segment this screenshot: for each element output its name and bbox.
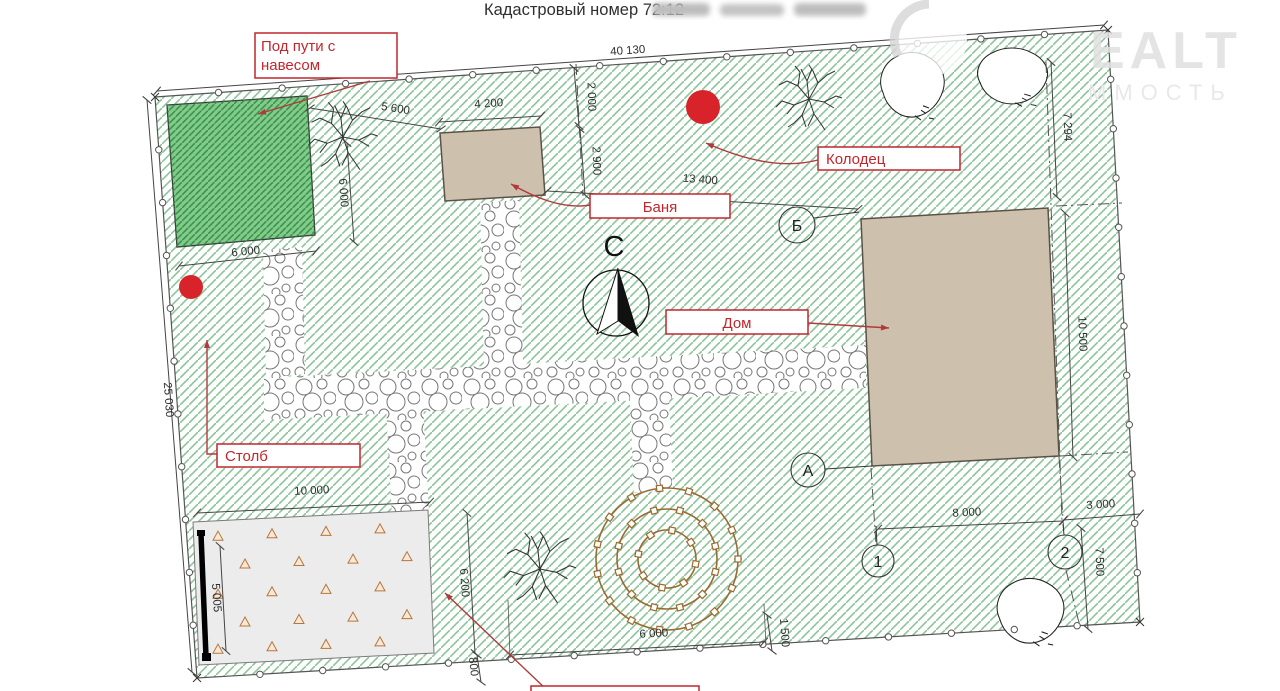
boundary-vertex xyxy=(571,652,577,658)
boundary-vertex xyxy=(1121,323,1127,329)
boundary-vertex xyxy=(186,569,192,575)
dim-right-bottom: 7 500 xyxy=(1092,547,1105,576)
boundary-vertex xyxy=(342,80,348,86)
callout-canopy-line1: Под пути с xyxy=(261,38,336,55)
boundary-vertex xyxy=(182,516,188,522)
boundary-vertex xyxy=(823,638,829,644)
dim-flowerbed-width: 6 000 xyxy=(639,627,668,640)
flowerbed-bead xyxy=(594,541,601,548)
boundary-vertex xyxy=(159,199,165,205)
flowerbed-bead xyxy=(635,551,642,558)
dim-canopy-side: 6 000 xyxy=(336,178,350,208)
boundary-vertex xyxy=(190,622,196,628)
flowerbed-bead xyxy=(656,485,663,492)
title-block: Кадастровый номер 72:12 xyxy=(484,1,866,19)
boundary-vertex xyxy=(978,36,984,42)
boundary-vertex xyxy=(171,358,177,364)
axis-label-b: Б xyxy=(792,218,803,235)
dim-800: 800 xyxy=(466,657,480,677)
boundary-vertex xyxy=(1011,626,1017,632)
boundary-vertex xyxy=(787,49,793,55)
boundary-vertex xyxy=(660,58,666,64)
boundary-vertex xyxy=(257,671,263,677)
boundary-vertex xyxy=(851,45,857,51)
boundary-vertex xyxy=(597,62,603,68)
flowerbed-bead xyxy=(685,488,693,496)
callout-well-label: Колодец xyxy=(826,151,886,168)
boundary-vertex xyxy=(382,664,388,670)
flowerbed-bead xyxy=(685,623,693,631)
boundary-vertex xyxy=(1134,570,1140,576)
dim-top-width: 40 130 xyxy=(610,44,646,58)
flowerbed-bead xyxy=(735,556,741,562)
dim-axis-1-2: 8 000 xyxy=(952,506,981,519)
flowerbed-bead xyxy=(615,568,622,575)
boundary-vertex xyxy=(470,72,476,78)
watermark-small-text: ММОСТЬ xyxy=(1088,80,1233,105)
boundary-vertex xyxy=(724,54,730,60)
boundary-vertex xyxy=(885,634,891,640)
boundary-vertex xyxy=(533,67,539,73)
watermark-big-text: EALT xyxy=(1090,22,1242,80)
dim-bath-depth: 2 900 xyxy=(589,146,602,175)
boundary-vertex xyxy=(406,76,412,82)
flowerbed-bead xyxy=(712,542,719,549)
dim-garden-right: 6 200 xyxy=(457,568,471,598)
dim-garden-width: 10 000 xyxy=(294,484,330,498)
boundary-vertex xyxy=(1118,274,1124,280)
dim-bath-width: 4 200 xyxy=(474,97,504,111)
dim-bath-offset: 2 000 xyxy=(584,82,597,111)
flowerbed-bead xyxy=(615,542,622,549)
dim-gate-length: 5 005 xyxy=(209,583,223,613)
flowerbed-bead xyxy=(676,604,683,611)
post-marker-dot xyxy=(179,275,203,299)
boundary-vertex xyxy=(1132,520,1138,526)
dim-1500: 1 500 xyxy=(777,618,791,648)
dim-left-height: 25 030 xyxy=(161,382,175,418)
flowerbed-bead xyxy=(669,527,676,534)
boundary-vertex xyxy=(1126,422,1132,428)
boundary-vertex xyxy=(163,252,169,258)
boundary-vertex xyxy=(1074,623,1080,629)
canopy-hatch xyxy=(167,96,315,247)
callout-bottom-partial-box xyxy=(531,686,699,691)
boundary-vertex xyxy=(634,649,640,655)
flowerbed-bead xyxy=(594,570,601,577)
site-plan-page: 40 130 25 030 5 600 4 200 6 000 6 000 2 … xyxy=(0,0,1280,691)
flowerbed-bead xyxy=(676,507,683,514)
flowerbed-bead xyxy=(650,604,657,611)
dim-right-top: 7 294 xyxy=(1060,112,1073,142)
boundary-vertex xyxy=(167,305,173,311)
boundary-vertex xyxy=(1116,224,1122,230)
bathhouse-building xyxy=(440,127,545,201)
boundary-vertex xyxy=(1110,126,1116,132)
dim-bath-to-house: 13 400 xyxy=(682,173,718,187)
dim-axis-2-right: 3 000 xyxy=(1086,498,1116,512)
boundary-vertex xyxy=(320,667,326,673)
callout-canopy-line2: навесом xyxy=(261,57,320,74)
axis-label-2: 2 xyxy=(1061,545,1070,562)
title-blurred-part xyxy=(652,3,866,16)
boundary-vertex xyxy=(1129,471,1135,477)
axis-label-a: А xyxy=(803,463,814,480)
garden-bed-area xyxy=(193,510,434,665)
callout-house-label: Дом xyxy=(723,315,752,332)
flowerbed-bead xyxy=(712,568,719,575)
flowerbed-bead xyxy=(692,561,699,568)
boundary-vertex xyxy=(179,464,185,470)
boundary-vertex xyxy=(508,656,514,662)
site-plan-svg: 40 130 25 030 5 600 4 200 6 000 6 000 2 … xyxy=(0,0,1280,691)
boundary-vertex xyxy=(215,89,221,95)
well-marker-dot xyxy=(686,90,720,124)
callout-post-label: Столб xyxy=(225,448,268,465)
dim-house-height: 10 500 xyxy=(1075,316,1088,352)
flowerbed-bead xyxy=(659,584,666,591)
boundary-vertex xyxy=(1041,31,1047,37)
boundary-vertex xyxy=(445,660,451,666)
house-building xyxy=(861,208,1059,466)
boundary-vertex xyxy=(1113,175,1119,181)
flowerbed-bead xyxy=(650,507,657,514)
boundary-vertex xyxy=(279,85,285,91)
boundary-vertex xyxy=(948,630,954,636)
callout-bathhouse-label: Баня xyxy=(643,199,678,216)
boundary-vertex xyxy=(156,147,162,153)
boundary-vertex xyxy=(1124,372,1130,378)
axis-label-1: 1 xyxy=(874,554,883,571)
north-label: С xyxy=(604,231,625,263)
